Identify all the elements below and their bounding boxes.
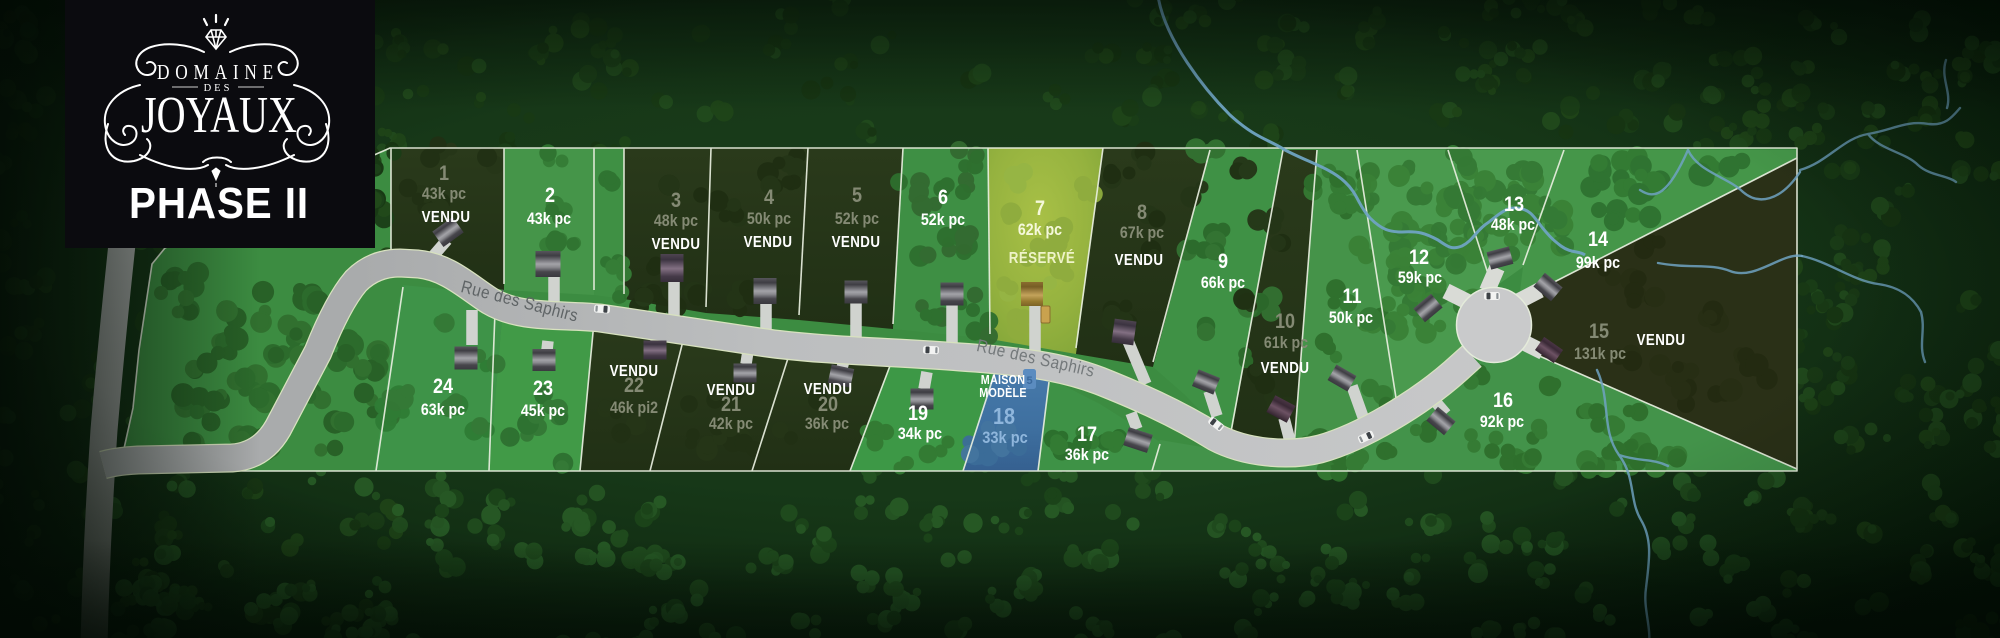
svg-text:JOYAUX: JOYAUX	[141, 87, 297, 144]
svg-text:DOMAINE: DOMAINE	[157, 60, 279, 84]
svg-text:PHASE II: PHASE II	[129, 179, 309, 228]
